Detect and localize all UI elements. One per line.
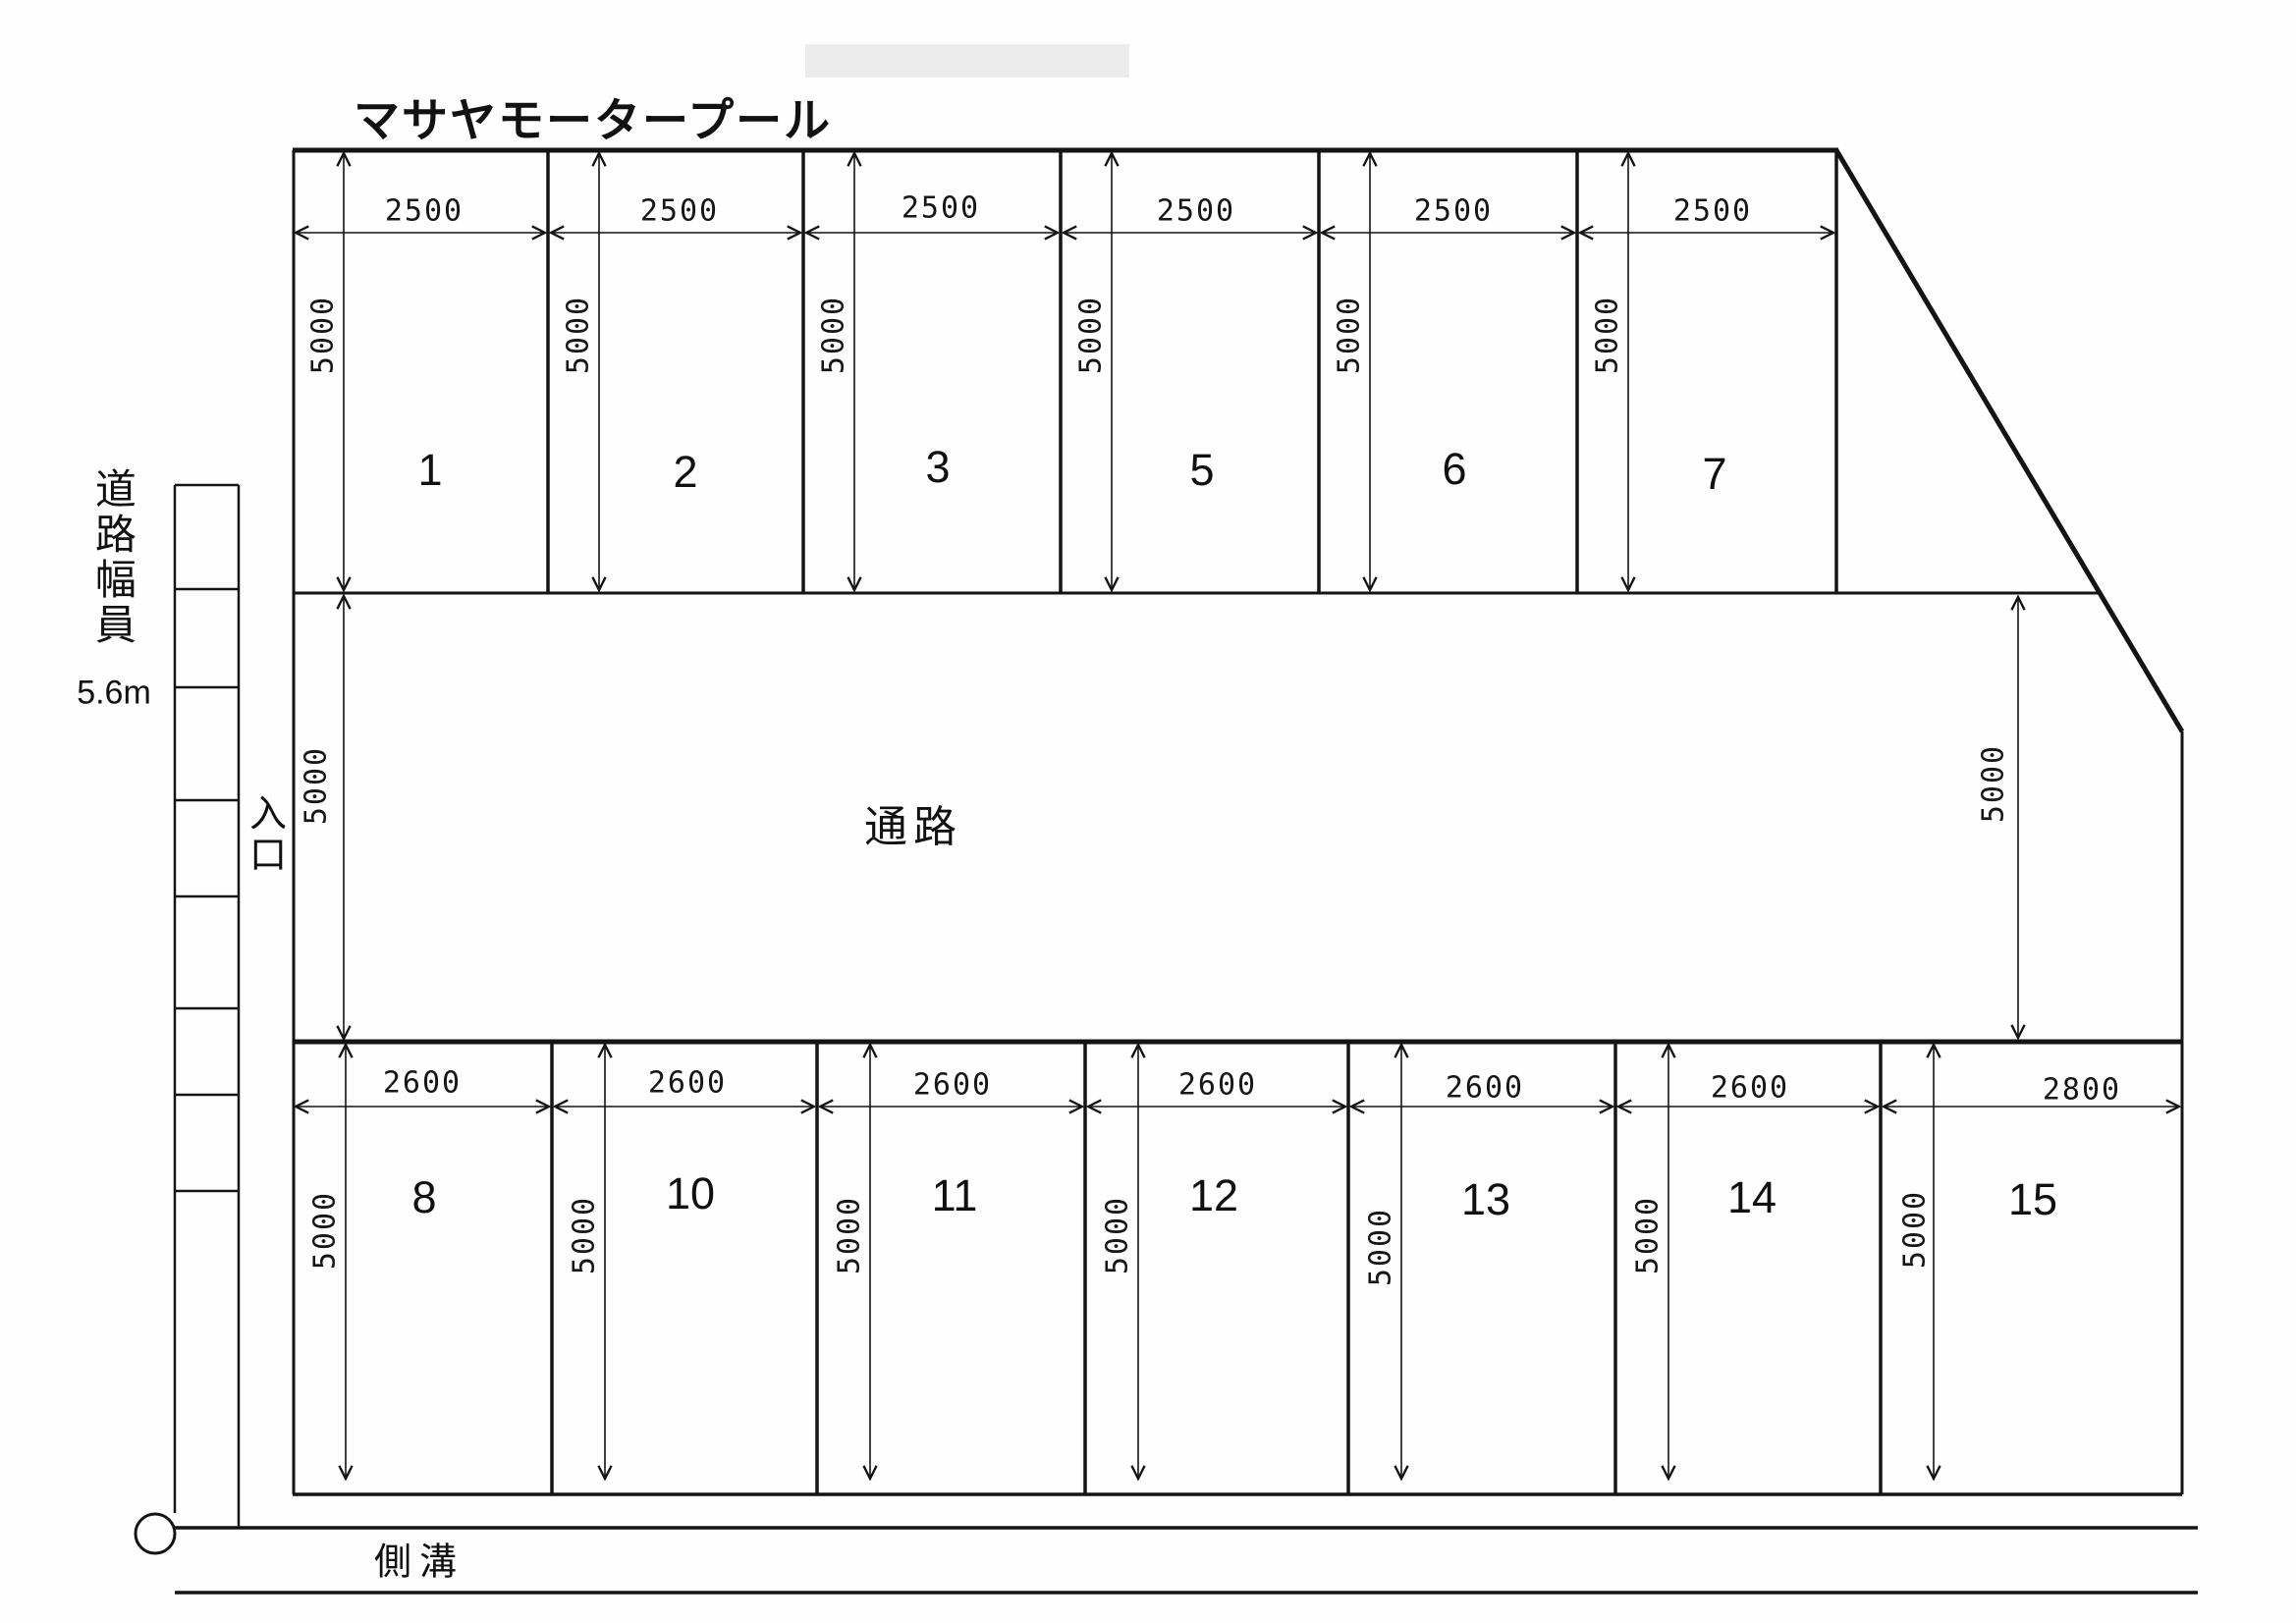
space-1-depth-dim: 5000 <box>306 296 341 374</box>
space-13-width-dim: 2600 <box>1446 1071 1524 1106</box>
space-10-number: 10 <box>666 1168 715 1219</box>
road-width-value: 5.6m <box>77 675 151 713</box>
space-1-width-dim: 2500 <box>385 194 464 229</box>
space-12-width-dim: 2600 <box>1178 1068 1257 1103</box>
space-5-depth-dim: 5000 <box>1074 296 1109 374</box>
space-2-depth-dim: 5000 <box>562 296 596 374</box>
space-2-width-dim: 2500 <box>640 194 719 229</box>
space-11-depth-dim: 5000 <box>833 1196 867 1274</box>
space-5-number: 5 <box>1189 445 1214 496</box>
space-6-number: 6 <box>1442 444 1466 495</box>
parking-lot-plan: マサヤモータープール 道路幅員 5.6m 入口 側溝 通路 5000 5000 … <box>0 0 2296 1623</box>
space-3-width-dim: 2500 <box>902 191 980 226</box>
space-14-depth-dim: 5000 <box>1631 1196 1666 1274</box>
space-15-width-dim: 2800 <box>2043 1073 2121 1108</box>
space-6-depth-dim: 5000 <box>1333 296 1367 374</box>
site-plan-linework <box>0 0 2296 1623</box>
space-7-depth-dim: 5000 <box>1591 296 1625 374</box>
road-width-label: 道路幅員 <box>91 467 134 648</box>
space-10-width-dim: 2600 <box>648 1066 727 1101</box>
lot-diagonal-edge <box>1836 150 2182 731</box>
space-7-width-dim: 2500 <box>1673 194 1752 229</box>
aisle-left-depth-dim: 5000 <box>300 746 334 825</box>
space-8-width-dim: 2600 <box>383 1066 462 1101</box>
space-8-number: 8 <box>411 1172 436 1223</box>
space-11-width-dim: 2600 <box>913 1068 992 1103</box>
aisle-right-depth-dim: 5000 <box>1977 744 2011 823</box>
space-8-depth-dim: 5000 <box>308 1191 343 1270</box>
bottom-row-boundaries <box>552 1042 1881 1494</box>
space-13-depth-dim: 5000 <box>1364 1208 1398 1286</box>
aisle-label: 通路 <box>864 791 962 854</box>
entrance-label: 入口 <box>238 793 292 876</box>
space-14-number: 14 <box>1727 1172 1777 1223</box>
road-strip <box>175 485 239 1528</box>
space-13-number: 13 <box>1461 1174 1510 1225</box>
space-15-depth-dim: 5000 <box>1898 1190 1933 1269</box>
plan-title: マサヤモータープール <box>354 82 832 150</box>
space-14-width-dim: 2600 <box>1711 1071 1789 1106</box>
space-2-number: 2 <box>673 447 697 498</box>
gutter-label: 側溝 <box>374 1532 465 1586</box>
space-15-number: 15 <box>2008 1174 2057 1225</box>
space-11-number: 11 <box>932 1170 978 1221</box>
space-7-number: 7 <box>1702 449 1726 500</box>
space-5-width-dim: 2500 <box>1157 194 1235 229</box>
space-6-width-dim: 2500 <box>1414 194 1493 229</box>
gutter-end-circle <box>136 1514 175 1553</box>
space-10-depth-dim: 5000 <box>568 1196 602 1274</box>
space-12-number: 12 <box>1189 1170 1238 1221</box>
space-1-number: 1 <box>417 445 442 496</box>
space-3-number: 3 <box>925 442 950 493</box>
space-12-depth-dim: 5000 <box>1101 1196 1135 1274</box>
space-3-depth-dim: 5000 <box>817 296 851 374</box>
